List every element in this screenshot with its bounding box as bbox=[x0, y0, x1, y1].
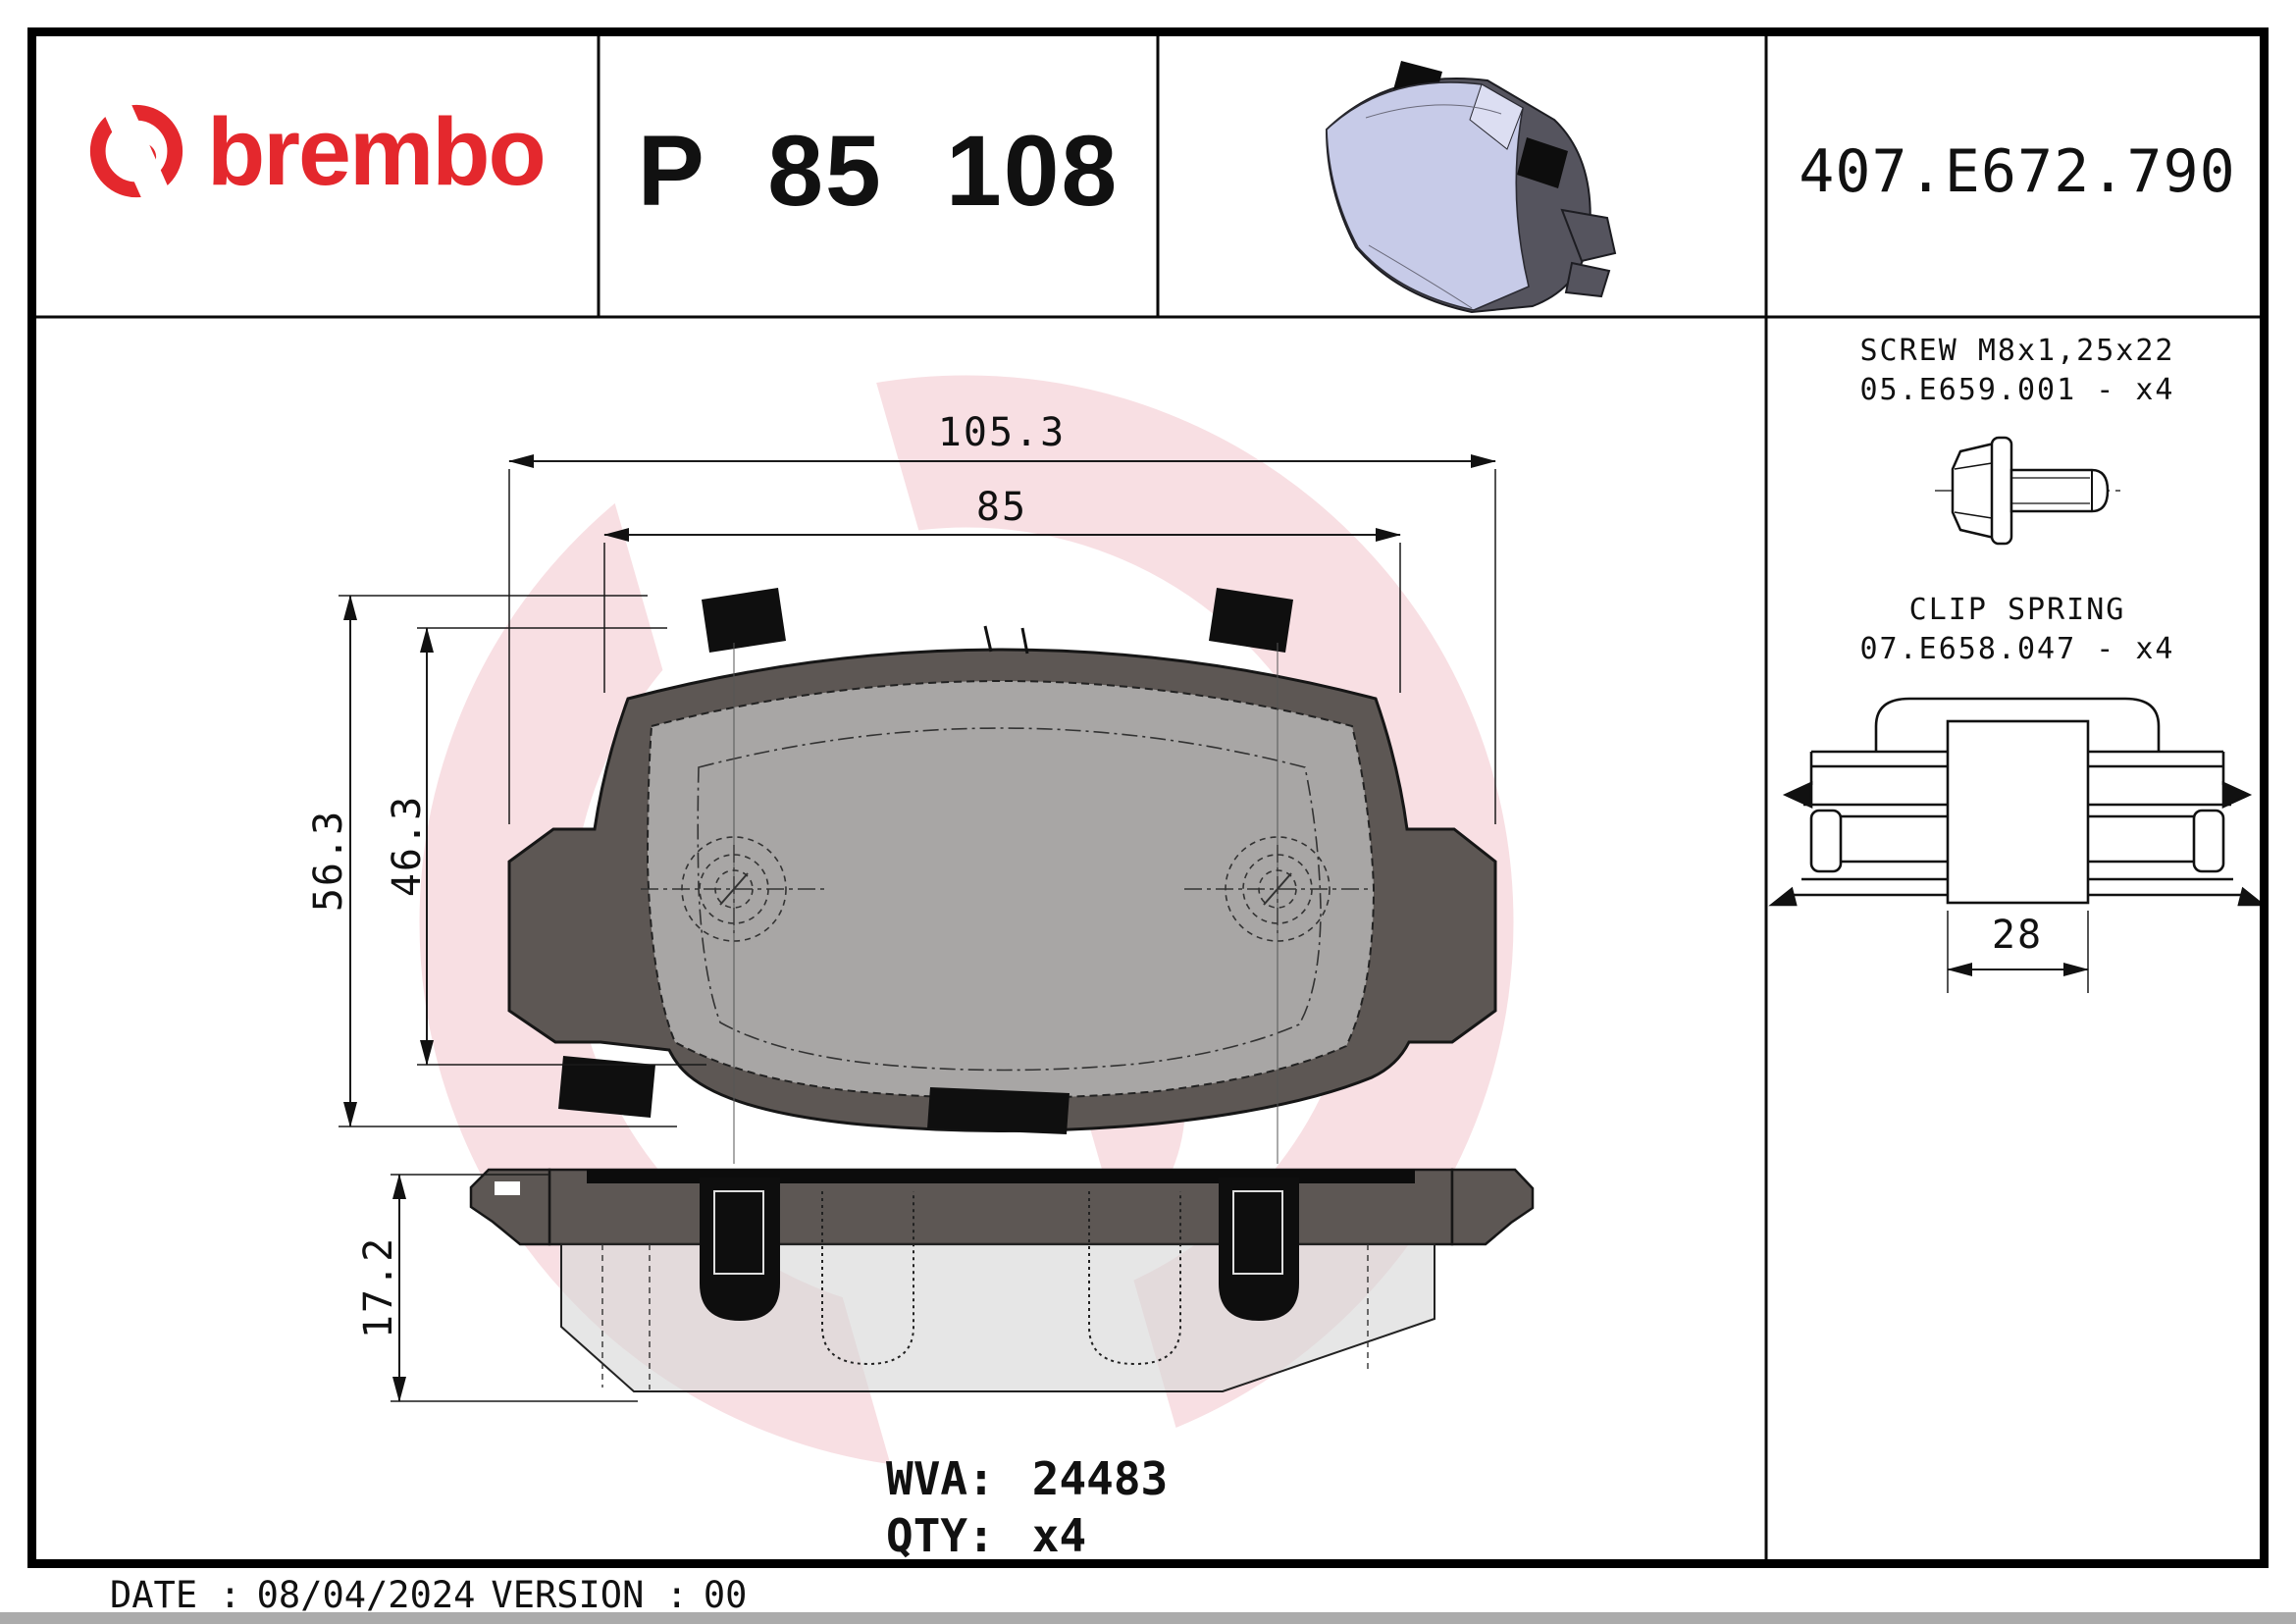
date-label: DATE : bbox=[110, 1574, 241, 1616]
date-value: 08/04/2024 bbox=[257, 1574, 476, 1616]
footer-date-line: DATE :08/04/2024VERSION :00 bbox=[110, 1574, 762, 1616]
outer-border bbox=[27, 27, 2269, 1568]
version-label: VERSION : bbox=[491, 1574, 687, 1616]
version-value: 00 bbox=[704, 1574, 748, 1616]
brembo-datasheet-page: brembo P 85 108 407.E672.790 SCREW M8x1,… bbox=[0, 0, 2296, 1624]
bottom-gray-strip bbox=[0, 1612, 2296, 1624]
